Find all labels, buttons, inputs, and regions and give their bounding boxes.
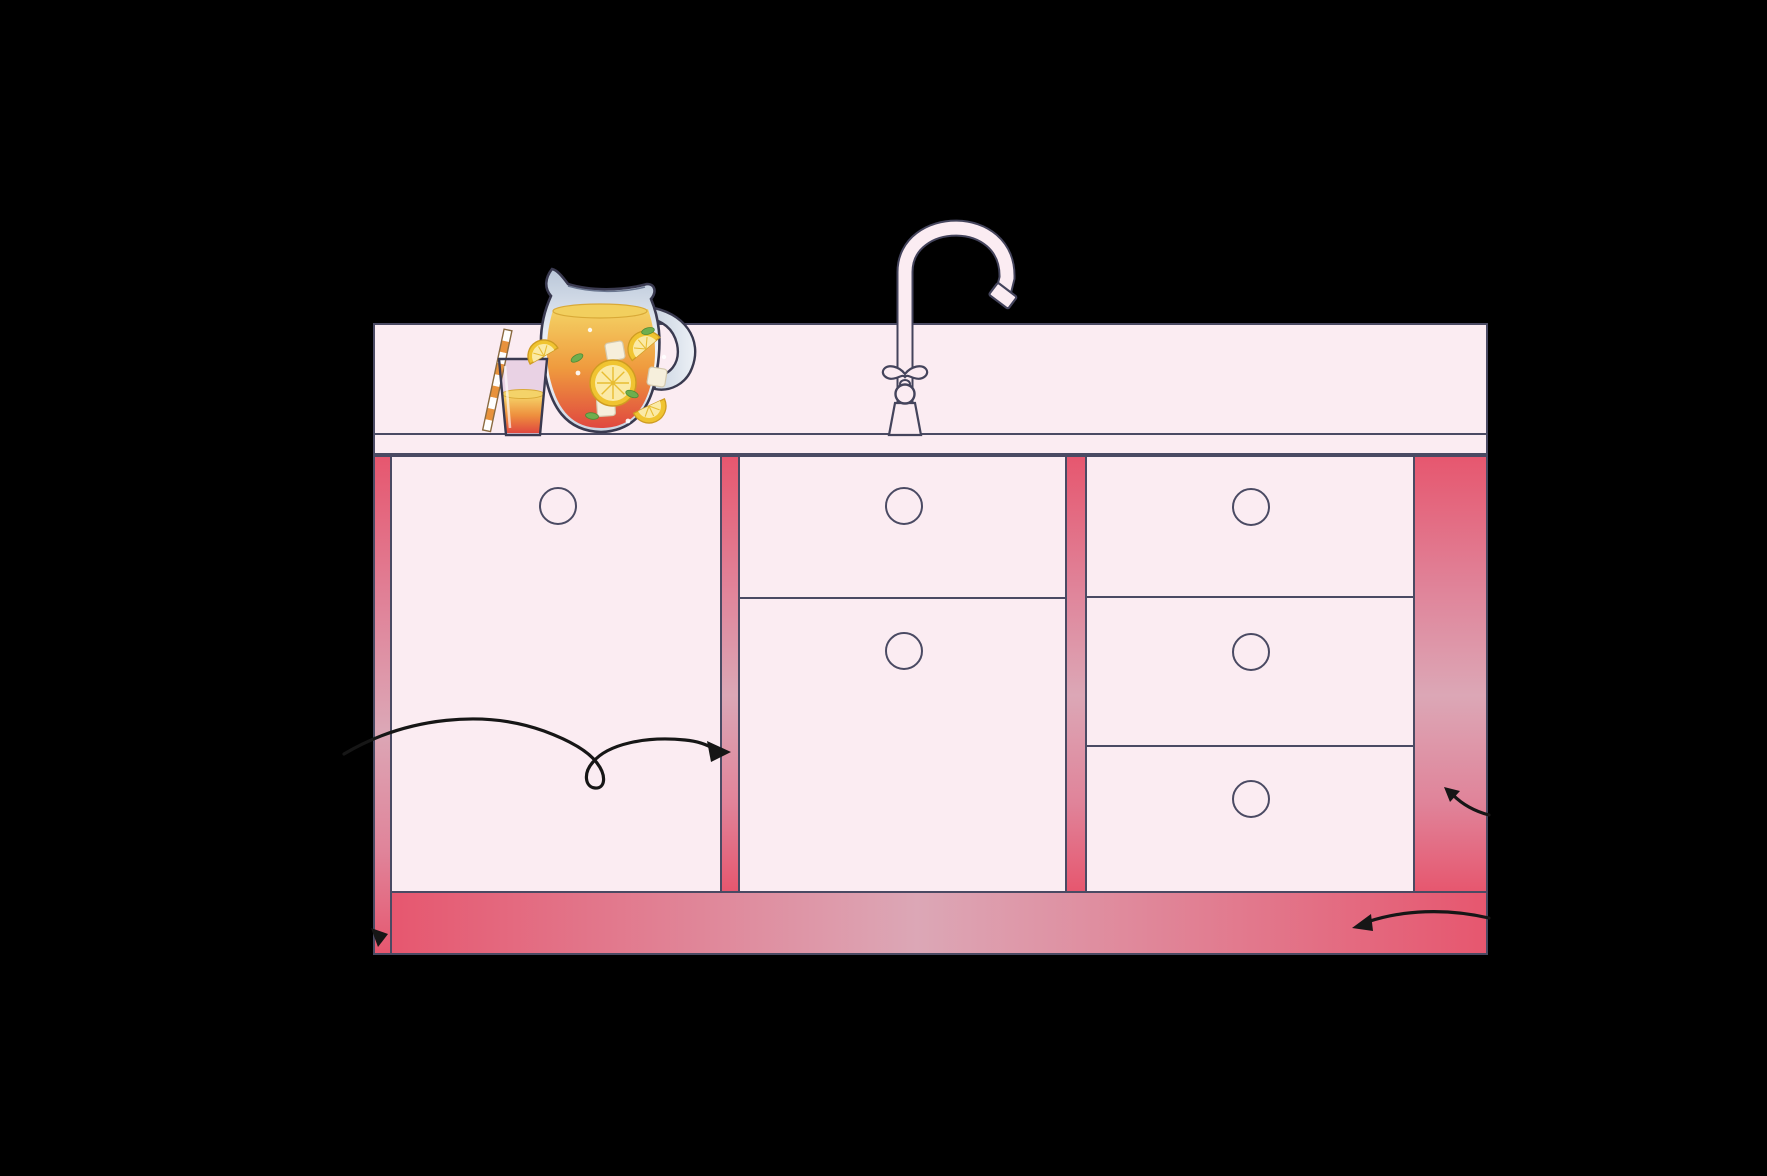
middle-top-drawer [740, 457, 1065, 597]
right-drawer-2-knob [1232, 633, 1270, 671]
cabinet-body [373, 455, 1488, 955]
middle-drawer-knob [885, 487, 923, 525]
faucet-nozzle [989, 283, 1017, 309]
right-drawer-3-knob [1232, 780, 1270, 818]
right-drawer-3 [1087, 747, 1413, 891]
countertop [373, 433, 1488, 455]
center-stile-left [722, 457, 738, 891]
left-door-knob [539, 487, 577, 525]
backsplash-panel [373, 323, 1488, 433]
scene: Kitchen sink base cabinet illustration w… [0, 0, 1767, 1176]
center-stile-right [1067, 457, 1085, 891]
right-end-panel [1415, 457, 1486, 891]
scene-title: Kitchen sink base cabinet illustration w… [0, 0, 1, 1]
left-stile [375, 457, 390, 953]
middle-door-knob [885, 632, 923, 670]
right-drawer-1 [1087, 457, 1413, 596]
right-drawer-2 [1087, 598, 1413, 745]
toe-kick [392, 893, 1486, 953]
right-drawer-1-knob [1232, 488, 1270, 526]
